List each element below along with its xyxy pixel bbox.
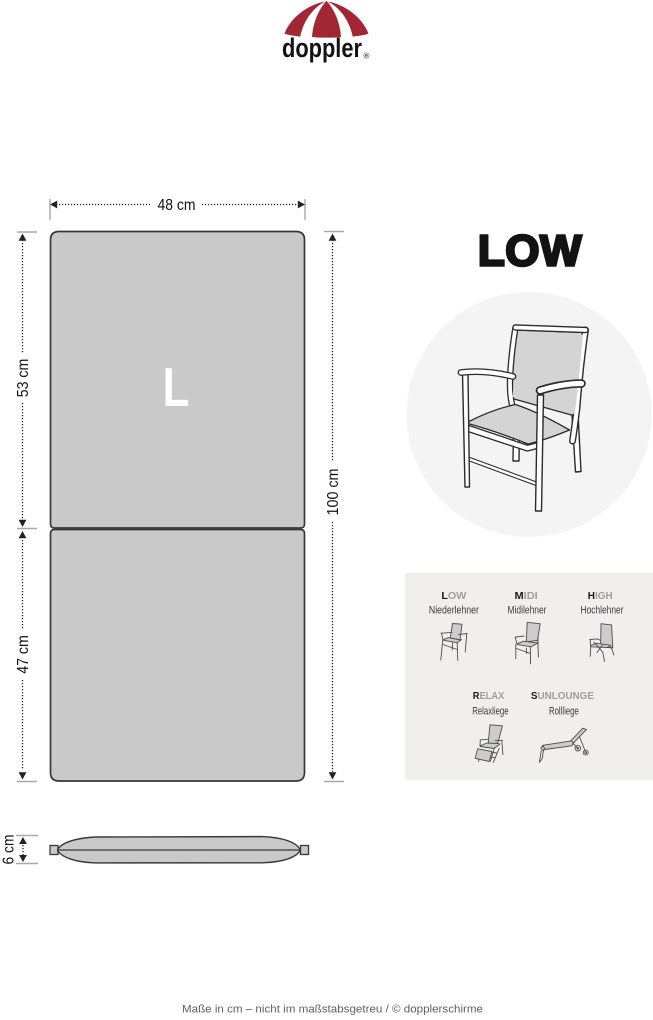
svg-text:HIGH: HIGH [588,591,613,602]
svg-text:Maße in cm – nicht im maßstabs: Maße in cm – nicht im maßstabsgetreu / ©… [182,1004,483,1016]
svg-text:Relaxliege: Relaxliege [472,706,508,718]
svg-text:LOW: LOW [441,591,467,602]
svg-text:48 cm: 48 cm [158,197,196,214]
svg-text:53 cm: 53 cm [15,359,32,398]
svg-text:Rollliege: Rollliege [549,706,579,718]
svg-text:MIDI: MIDI [515,591,538,602]
svg-text:6 cm: 6 cm [1,835,18,865]
svg-text:Hochlehner: Hochlehner [581,605,624,617]
svg-text:SUNLOUNGE: SUNLOUNGE [531,691,594,702]
svg-text:RELAX: RELAX [473,691,505,702]
svg-text:Midilehner: Midilehner [508,605,547,617]
svg-text:L: L [163,356,190,418]
svg-text:47 cm: 47 cm [15,635,32,674]
svg-text:100 cm: 100 cm [325,469,342,516]
svg-text:Niederlehner: Niederlehner [429,605,479,617]
svg-text:LOW: LOW [478,227,582,276]
svg-text:®: ® [364,52,370,61]
svg-text:doppler: doppler [282,33,362,63]
